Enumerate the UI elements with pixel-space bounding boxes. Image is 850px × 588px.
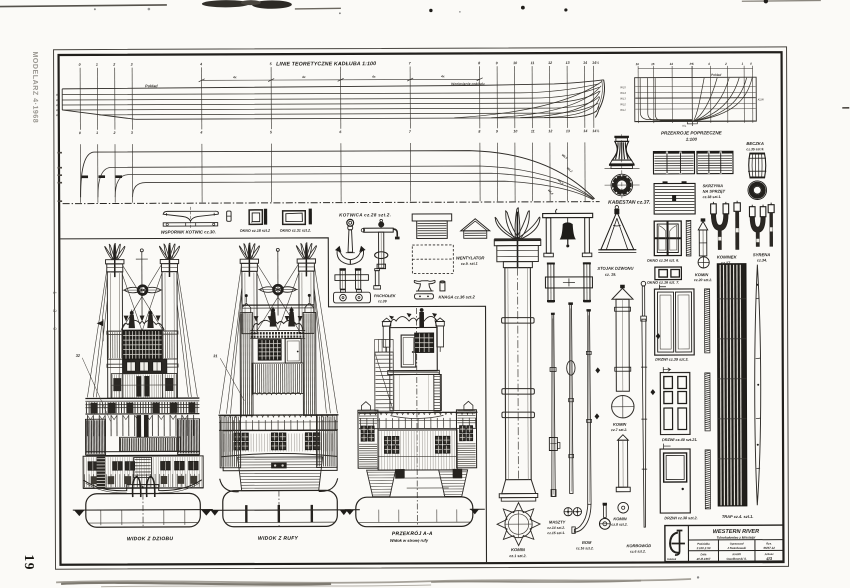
svg-text:W1: W1: [56, 113, 61, 117]
svg-text:TRAP cz.4. szt.1.: TRAP cz.4. szt.1.: [722, 514, 754, 519]
svg-text:KOMIN: KOMIN: [613, 516, 626, 521]
svg-text:SKRZYNIA: SKRZYNIA: [703, 183, 724, 188]
svg-text:8: 8: [478, 130, 480, 134]
svg-text:W2: W2: [56, 108, 61, 112]
svg-text:PRZEKRÓJ A-A: PRZEKRÓJ A-A: [392, 530, 433, 537]
svg-text:KOMIN: KOMIN: [695, 272, 708, 277]
svg-text:LINIE TEORETYCZNE KADŁUBA 1:: LINIE TEORETYCZNE KADŁUBA 1:100: [276, 61, 376, 67]
svg-text:NA SPRZĘT: NA SPRZĘT: [703, 189, 726, 194]
svg-text:WSPORNIK KOTWIC cz.30.: WSPORNIK KOTWIC cz.30.: [161, 229, 216, 234]
svg-text:WIDOK Z DZIOBU: WIDOK Z DZIOBU: [127, 536, 174, 542]
svg-text:12: 12: [548, 129, 552, 133]
svg-text:3: 3: [131, 63, 133, 67]
svg-text:4/3: 4/3: [765, 556, 773, 561]
svg-text:W3: W3: [56, 103, 61, 107]
svg-text:cz.14 szt.2.: cz.14 szt.2.: [547, 526, 565, 530]
svg-text:11: 11: [531, 61, 535, 65]
svg-text:WESTERN RIVER: WESTERN RIVER: [713, 529, 760, 535]
svg-text:9: 9: [496, 61, 498, 65]
svg-text:Data: Data: [701, 552, 707, 556]
svg-text:19: 19: [22, 554, 37, 571]
svg-text:SYRENA: SYRENA: [753, 252, 770, 257]
svg-text:PŚ: PŚ: [690, 61, 694, 66]
svg-text:Widok w stronę rufy: Widok w stronę rufy: [390, 538, 429, 543]
svg-text:OKNO cz.34 szt. 6.: OKNO cz.34 szt. 6.: [647, 259, 679, 263]
svg-text:OKNO cz.16 szt. 7.: OKNO cz.16 szt. 7.: [647, 281, 679, 285]
svg-text:WENTYLATOR: WENTYLATOR: [456, 255, 485, 260]
svg-text:WL4: WL4: [620, 91, 626, 95]
svg-text:MASZTY: MASZTY: [549, 519, 566, 524]
svg-text:8: 8: [478, 61, 480, 65]
svg-text:Kreślił: Kreślił: [733, 552, 741, 556]
svg-text:14: 14: [583, 61, 587, 65]
svg-text:cz.8 szt.2.: cz.8 szt.2.: [611, 523, 627, 527]
svg-text:66/67-12: 66/67-12: [763, 546, 775, 550]
svg-text:4: 4: [199, 62, 202, 66]
svg-text:KNAGA cz.36 szt.2: KNAGA cz.36 szt.2: [438, 294, 475, 299]
svg-text:4x: 4x: [232, 75, 237, 79]
svg-text:OKNO cz.31 szt.2.: OKNO cz.31 szt.2.: [280, 229, 311, 233]
svg-text:WL1: WL1: [620, 108, 626, 112]
svg-text:15: 15: [651, 62, 655, 66]
svg-text:10: 10: [513, 129, 517, 133]
svg-text:4: 4: [199, 131, 202, 135]
svg-text:KOTWICA cz.28 szt.2.: KOTWICA cz.28 szt.2.: [339, 212, 391, 217]
svg-text:cz.20 szt.2.: cz.20 szt.2.: [694, 278, 712, 282]
svg-text:STOJAK DZWONU: STOJAK DZWONU: [597, 266, 634, 271]
svg-text:2: 2: [112, 63, 115, 67]
svg-text:W4: W4: [56, 98, 61, 102]
svg-text:MODELARZ 4·1968: MODELARZ 4·1968: [31, 51, 39, 123]
svg-text:3: 3: [131, 131, 133, 135]
svg-text:cz.35 szt.9.: cz.35 szt.9.: [746, 147, 764, 151]
svg-text:KLW: KLW: [758, 97, 764, 101]
svg-text:Wzniesienie pokładu: Wzniesienie pokładu: [451, 82, 485, 86]
svg-text:4x: 4x: [301, 75, 306, 79]
svg-text:OKNO cz.18 szt.2: OKNO cz.18 szt.2: [240, 229, 271, 233]
svg-text:KOMIN: KOMIN: [613, 422, 626, 427]
svg-text:14½: 14½: [592, 61, 599, 65]
svg-text:KOMINEK: KOMINEK: [717, 254, 738, 259]
svg-text:4x: 4x: [371, 75, 376, 79]
svg-text:DRZWI cz.40 szt.21.: DRZWI cz.40 szt.21.: [662, 438, 697, 442]
svg-text:Pokład: Pokład: [711, 73, 721, 77]
svg-text:cz.34.: cz.34.: [757, 258, 767, 262]
svg-text:2: 2: [724, 62, 727, 66]
svg-text:16: 16: [636, 62, 640, 66]
svg-text:13: 13: [566, 129, 570, 133]
svg-text:14½: 14½: [592, 129, 599, 133]
svg-text:12: 12: [548, 61, 552, 65]
svg-text:Gwułkowski S.: Gwułkowski S.: [727, 557, 747, 561]
svg-text:14: 14: [583, 129, 587, 133]
svg-text:J.Twardowski: J.Twardowski: [727, 546, 746, 550]
svg-text:PRZEKROJE POPRZECZNE: PRZEKROJE POPRZECZNE: [661, 130, 723, 135]
svg-text:13: 13: [566, 61, 570, 65]
svg-text:WL2: WL2: [620, 102, 626, 106]
svg-text:WL5: WL5: [620, 85, 626, 89]
svg-text:KIL: KIL: [682, 124, 687, 128]
svg-text:1:100: 1:100: [686, 137, 698, 142]
svg-text:WL3: WL3: [620, 97, 626, 101]
svg-text:DRZWI cz.38 szt.2.: DRZWI cz.38 szt.2.: [664, 516, 697, 520]
svg-text:PACHOŁEK: PACHOŁEK: [374, 293, 397, 298]
svg-text:4x: 4x: [440, 74, 445, 78]
svg-text:Gdańsk: Gdańsk: [667, 558, 677, 561]
svg-text:Pokład: Pokład: [145, 84, 158, 88]
svg-text:BECZKA: BECZKA: [746, 141, 763, 146]
svg-text:BOM: BOM: [582, 540, 592, 545]
svg-text:11: 11: [531, 129, 535, 133]
svg-text:cz.15 szt.1.: cz.15 szt.1.: [547, 531, 565, 535]
svg-text:20.III.1967: 20.III.1967: [696, 557, 711, 561]
svg-text:10: 10: [513, 61, 517, 65]
svg-text:cz.16 szt.2.: cz.16 szt.2.: [576, 546, 594, 550]
svg-text:0: 0: [79, 63, 81, 67]
svg-text:1: 1: [96, 131, 98, 135]
svg-text:Tylnokołowiec z Missisipi: Tylnokołowiec z Missisipi: [717, 536, 756, 540]
svg-text:KOMIN: KOMIN: [511, 547, 526, 552]
svg-text:4: 4: [707, 62, 710, 66]
svg-text:cz. 19.: cz. 19.: [605, 273, 616, 277]
svg-text:2: 2: [112, 131, 115, 135]
svg-text:cz.9. szt.1: cz.9. szt.1: [461, 262, 478, 266]
svg-text:9: 9: [496, 129, 498, 133]
svg-text:1:100,1:50: 1:100,1:50: [696, 546, 710, 550]
svg-text:cz.39: cz.39: [378, 299, 387, 303]
svg-text:1: 1: [96, 63, 98, 67]
svg-text:WIDOK Z RUFY: WIDOK Z RUFY: [258, 536, 299, 542]
svg-text:cz.1 szt.2.: cz.1 szt.2.: [509, 554, 526, 558]
svg-text:cz.38 szt.1.: cz.38 szt.1.: [703, 195, 722, 199]
svg-text:14: 14: [670, 62, 674, 66]
svg-text:cz.7 szt.2.: cz.7 szt.2.: [611, 428, 627, 432]
svg-text:0: 0: [79, 131, 81, 135]
svg-text:cz.6 szt.2.: cz.6 szt.2.: [630, 550, 646, 554]
svg-text:KABESTAN cz.37.: KABESTAN cz.37.: [608, 200, 650, 206]
svg-text:W5: W5: [56, 93, 61, 97]
svg-text:31: 31: [213, 354, 217, 358]
svg-text:DRZWI cz.39 szt.3.: DRZWI cz.39 szt.3.: [655, 358, 688, 362]
svg-text:KORBOWÓD: KORBOWÓD: [626, 543, 651, 548]
